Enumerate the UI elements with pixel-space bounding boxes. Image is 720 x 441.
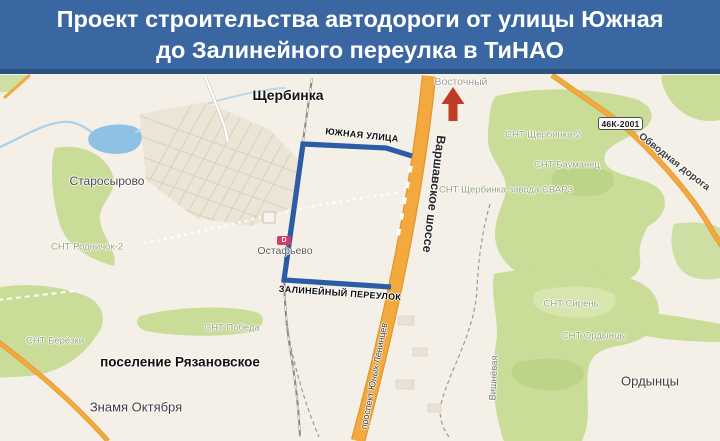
ostafyevo-station-icon: D bbox=[277, 236, 291, 245]
road-shield-46k-2001: 46К-2001 bbox=[598, 117, 643, 130]
building bbox=[428, 404, 441, 412]
building bbox=[396, 380, 414, 389]
building bbox=[398, 316, 414, 325]
slide: Проект строительства автодороги от улицы… bbox=[0, 0, 720, 441]
landmark-building bbox=[263, 212, 275, 223]
title-line-2: до Залинейного переулка в ТиНАО bbox=[0, 35, 720, 66]
title-line-1: Проект строительства автодороги от улицы… bbox=[0, 0, 720, 35]
title-banner: Проект строительства автодороги от улицы… bbox=[0, 0, 720, 74]
building bbox=[413, 348, 427, 356]
